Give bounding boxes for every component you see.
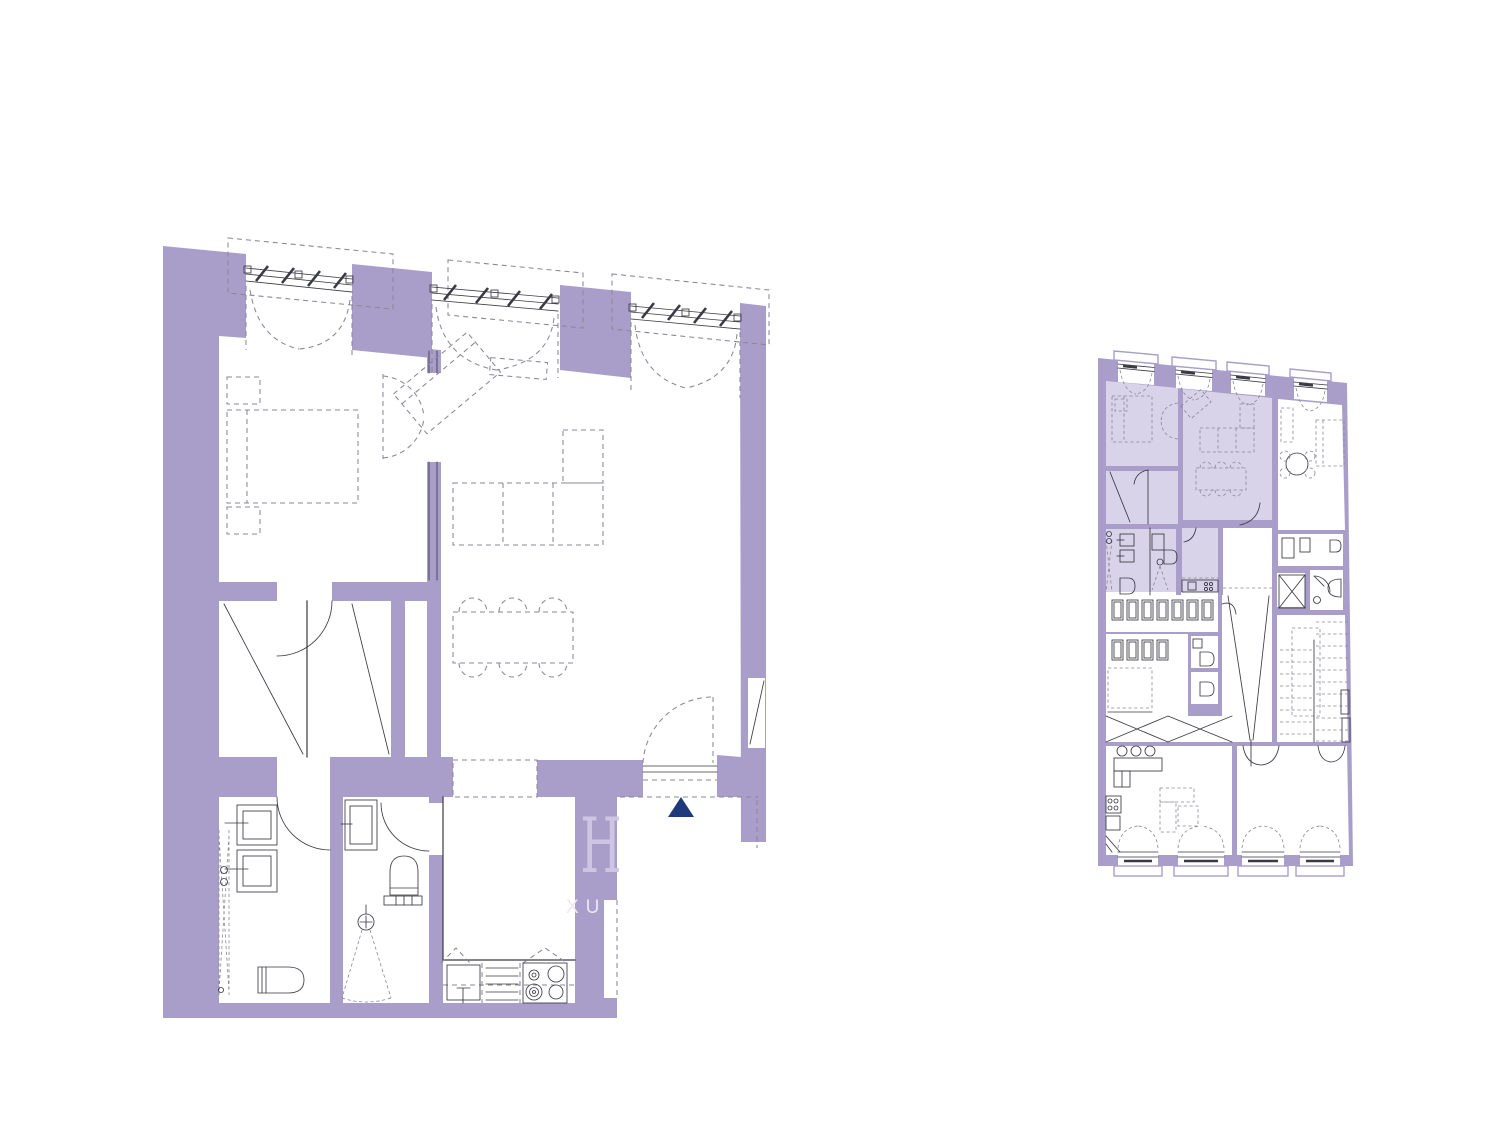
double-door (383, 351, 437, 580)
dining-table (453, 598, 573, 677)
window-bedroom (244, 266, 353, 358)
window-living-left (430, 285, 559, 378)
shower-room-door-arc (381, 803, 429, 851)
balcony-outlines (228, 238, 769, 345)
bathroom-door-arc (277, 797, 330, 850)
bedroom (227, 351, 437, 580)
building-overview-plan (1085, 340, 1365, 885)
nightstand (227, 507, 260, 534)
sideboard (489, 358, 547, 380)
bathroom (219, 797, 331, 995)
stove (523, 963, 567, 1003)
shower-room (341, 800, 429, 1002)
shower (342, 905, 391, 1002)
toilet (258, 967, 304, 993)
floor-plan-page: H XU (0, 0, 1494, 1140)
hallway (224, 601, 389, 757)
sink (341, 800, 377, 850)
hall-door-arc (277, 601, 332, 656)
kitchen-island (453, 430, 603, 545)
watermark-letter: H (580, 801, 621, 890)
nightstand (227, 377, 260, 404)
watermark-partial-text: XU (566, 897, 606, 918)
toilet (384, 856, 422, 905)
drainer (486, 968, 518, 1000)
vanity-sinks (225, 805, 277, 892)
living-room (394, 332, 603, 677)
window-living-right (629, 303, 741, 398)
kitchen (441, 797, 575, 1003)
bed (227, 377, 358, 534)
walls (163, 246, 766, 1018)
apartment-floor-plan: H XU (150, 225, 790, 1035)
entrance-marker-icon (668, 797, 694, 817)
entrance-door (617, 697, 758, 998)
kitchen-sink (447, 965, 480, 1003)
radiator-strip (219, 830, 230, 995)
